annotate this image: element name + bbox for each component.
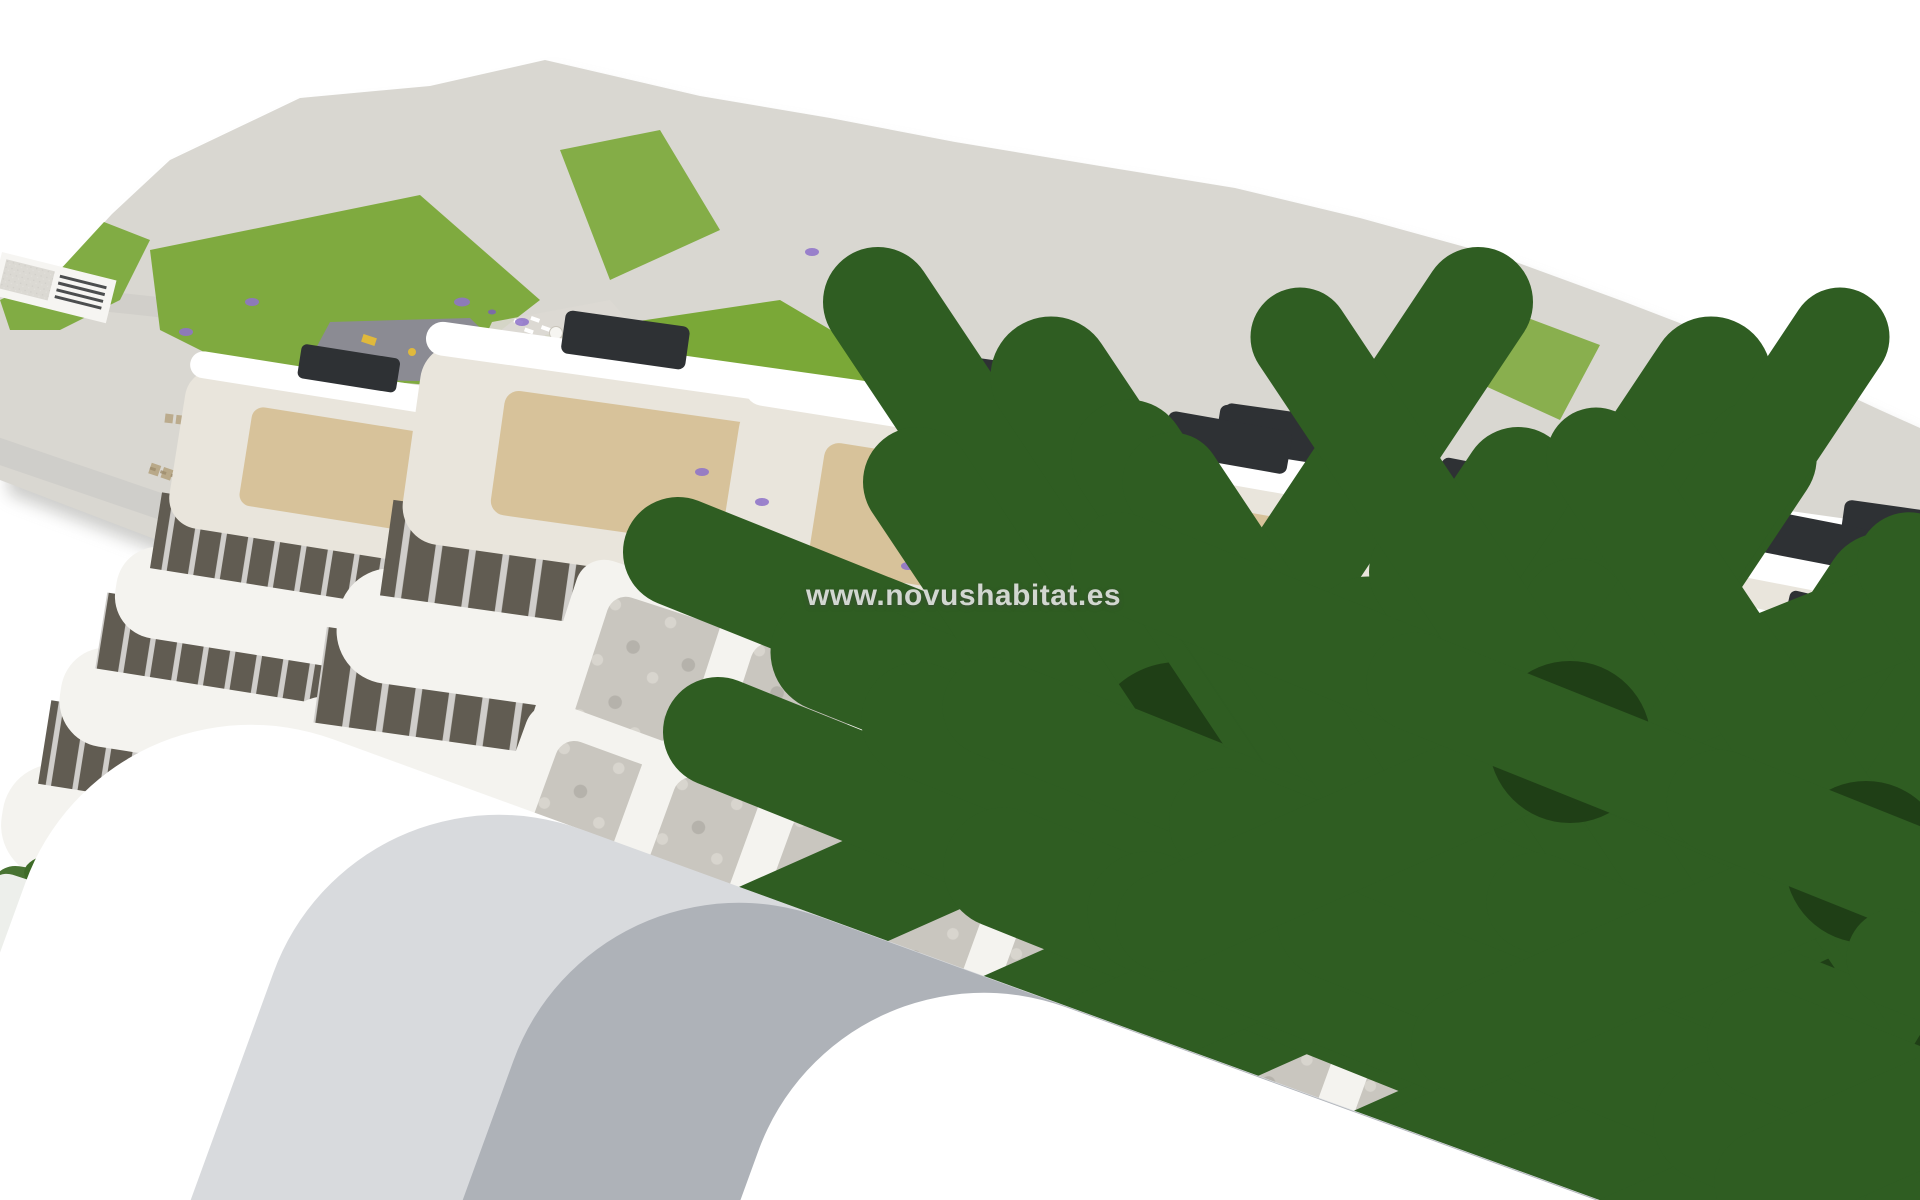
site-plan-svg [0, 0, 1920, 1200]
render-canvas: www.novushabitat.es [0, 0, 1920, 1200]
